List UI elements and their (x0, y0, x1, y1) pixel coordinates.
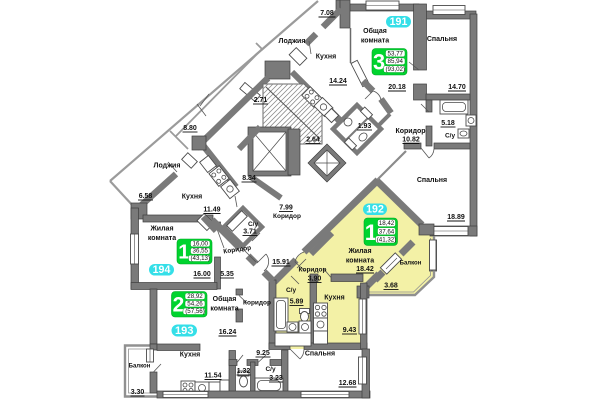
svg-text:Лоджия: Лоджия (154, 163, 181, 170)
svg-text:Жилая: Жилая (347, 248, 371, 255)
svg-text:28,92: 28,92 (187, 293, 203, 300)
svg-text:Общая: Общая (213, 295, 237, 303)
svg-text:18,42: 18,42 (379, 220, 395, 227)
svg-text:14.24: 14.24 (329, 78, 347, 85)
svg-text:2: 2 (173, 294, 185, 317)
svg-text:3: 3 (373, 50, 385, 75)
svg-text:комната: комната (346, 258, 374, 265)
svg-text:18.89: 18.89 (447, 214, 465, 221)
svg-text:1: 1 (178, 241, 189, 264)
svg-text:комната: комната (148, 235, 176, 242)
svg-text:3.68: 3.68 (384, 283, 398, 290)
svg-text:7.99: 7.99 (279, 205, 293, 212)
svg-text:7.08: 7.08 (320, 10, 334, 17)
svg-text:6.58: 6.58 (139, 193, 153, 200)
svg-text:С/у: С/у (248, 221, 259, 228)
svg-text:Общая: Общая (363, 27, 387, 35)
svg-text:комната: комната (210, 306, 238, 313)
svg-text:Кухня: Кухня (324, 295, 344, 302)
svg-text:8.84: 8.84 (242, 175, 256, 182)
svg-text:11.54: 11.54 (204, 373, 221, 380)
svg-text:191: 191 (390, 16, 408, 28)
svg-text:194: 194 (153, 264, 171, 276)
svg-text:53,77: 53,77 (388, 50, 404, 57)
svg-text:Балкон: Балкон (129, 364, 151, 370)
svg-text:8.80: 8.80 (183, 125, 197, 132)
svg-text:9.43: 9.43 (343, 327, 357, 334)
svg-text:Спальня: Спальня (427, 36, 457, 43)
svg-text:(43,13): (43,13) (190, 255, 210, 262)
svg-text:Кухня: Кухня (180, 352, 200, 359)
svg-text:Балкон: Балкон (400, 261, 422, 267)
svg-text:Кухня: Кухня (316, 54, 336, 61)
svg-text:3.30: 3.30 (131, 389, 145, 396)
svg-text:Коридор: Коридор (395, 128, 425, 135)
svg-text:18.42: 18.42 (356, 266, 374, 273)
svg-text:5.89: 5.89 (290, 299, 304, 306)
svg-text:192: 192 (366, 204, 384, 216)
svg-text:Жилая: Жилая (149, 226, 173, 233)
svg-text:36,55: 36,55 (193, 248, 209, 255)
svg-text:5.18: 5.18 (441, 120, 455, 127)
svg-text:12.68: 12.68 (339, 380, 357, 387)
svg-text:Коридор: Коридор (273, 213, 301, 220)
svg-text:193: 193 (175, 325, 193, 337)
svg-text:14.70: 14.70 (448, 84, 466, 91)
svg-text:85,94: 85,94 (388, 58, 404, 65)
svg-text:2.64: 2.64 (306, 137, 320, 144)
svg-text:16.24: 16.24 (219, 329, 237, 336)
svg-text:10.82: 10.82 (402, 137, 420, 144)
svg-text:16.00: 16.00 (193, 271, 211, 278)
svg-text:Лоджия: Лоджия (279, 38, 306, 45)
svg-text:комната: комната (361, 38, 389, 45)
svg-text:16,00: 16,00 (193, 240, 209, 247)
svg-text:2.71: 2.71 (254, 97, 268, 104)
svg-text:(57,56): (57,56) (185, 308, 205, 315)
svg-text:С/у: С/у (445, 133, 456, 140)
svg-text:3.90: 3.90 (308, 276, 322, 283)
svg-text:15.91: 15.91 (272, 259, 290, 266)
svg-text:3.71: 3.71 (243, 229, 257, 236)
svg-text:Спальня: Спальня (305, 351, 335, 358)
svg-text:(41,32): (41,32) (377, 237, 397, 244)
svg-text:1.93: 1.93 (358, 123, 372, 130)
svg-text:54,26: 54,26 (187, 301, 203, 308)
svg-text:3.23: 3.23 (269, 375, 283, 382)
svg-text:9.25: 9.25 (256, 350, 270, 357)
svg-text:С/у: С/у (265, 366, 276, 373)
svg-text:С/у: С/у (286, 287, 297, 294)
svg-text:37,64: 37,64 (379, 228, 395, 235)
svg-text:Коридор: Коридор (243, 300, 271, 307)
svg-text:Кухня: Кухня (182, 194, 202, 201)
svg-text:(93,02): (93,02) (385, 66, 405, 73)
svg-text:Коридор: Коридор (299, 267, 327, 274)
svg-text:11.49: 11.49 (203, 207, 220, 214)
svg-text:20.18: 20.18 (388, 84, 406, 91)
svg-text:1.32: 1.32 (237, 368, 251, 375)
svg-text:5.35: 5.35 (220, 271, 234, 278)
svg-text:Спальня: Спальня (417, 177, 447, 184)
